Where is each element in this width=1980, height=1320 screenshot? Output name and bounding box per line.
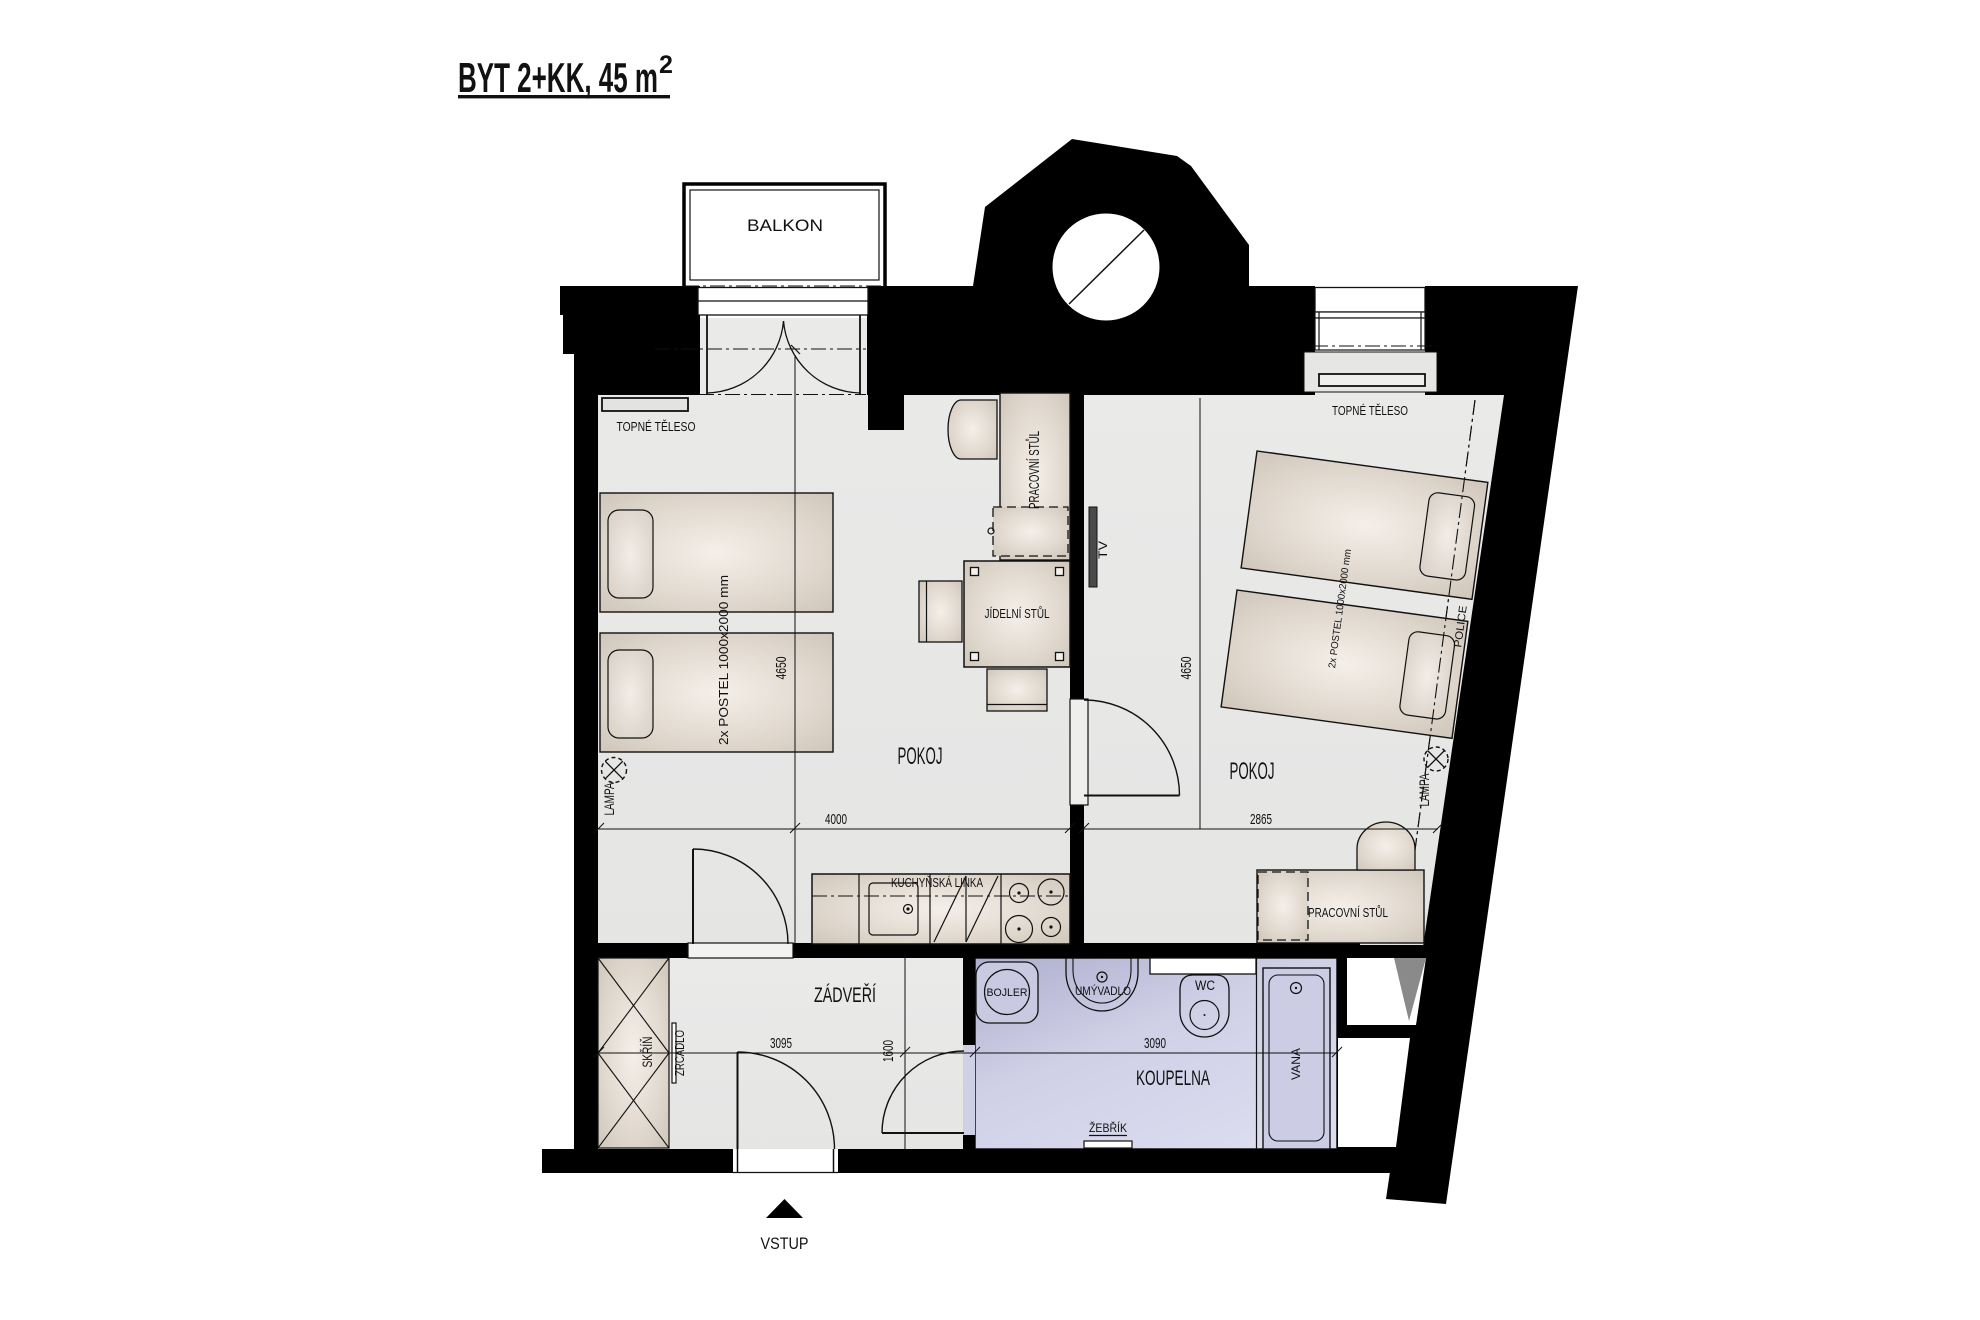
svg-text:1600: 1600 (880, 1040, 897, 1062)
svg-text:2x POSTEL 1000x2000 mm: 2x POSTEL 1000x2000 mm (716, 575, 731, 745)
svg-text:POKOJ: POKOJ (1230, 758, 1275, 785)
svg-text:UMÝVADLO: UMÝVADLO (1075, 983, 1131, 998)
svg-text:KOUPELNA: KOUPELNA (1136, 1067, 1210, 1090)
svg-text:PRACOVNÍ STŮL: PRACOVNÍ STŮL (1025, 431, 1043, 509)
svg-text:WC: WC (1195, 978, 1215, 993)
svg-text:BOJLER: BOJLER (987, 987, 1028, 999)
svg-text:PRACOVNÍ STŮL: PRACOVNÍ STŮL (1308, 905, 1388, 920)
svg-text:ŽEBŘÍK: ŽEBŘÍK (1089, 1120, 1127, 1135)
svg-text:4650: 4650 (1178, 657, 1195, 680)
svg-text:JÍDELNÍ STŮL: JÍDELNÍ STŮL (985, 606, 1050, 621)
svg-text:LAMPA: LAMPA (601, 782, 617, 815)
svg-text:4650: 4650 (773, 657, 790, 680)
svg-text:BYT 2+KK, 45 m: BYT 2+KK, 45 m (458, 54, 658, 101)
svg-text:ZÁDVEŘÍ: ZÁDVEŘÍ (814, 984, 876, 1007)
svg-text:KUCHYŇSKÁ LINKA: KUCHYŇSKÁ LINKA (891, 875, 984, 890)
svg-text:LAMPA: LAMPA (1416, 773, 1432, 806)
svg-text:2: 2 (659, 51, 673, 79)
svg-text:TOPNÉ TĚLESO: TOPNÉ TĚLESO (617, 419, 696, 434)
svg-text:4000: 4000 (825, 811, 847, 828)
svg-text:TOPNÉ TĚLESO: TOPNÉ TĚLESO (1332, 403, 1408, 418)
svg-text:POKOJ: POKOJ (898, 743, 943, 770)
svg-text:SKŘÍŇ: SKŘÍŇ (639, 1037, 655, 1068)
svg-text:3095: 3095 (770, 1035, 792, 1052)
svg-text:3090: 3090 (1144, 1035, 1166, 1052)
svg-text:2865: 2865 (1250, 811, 1272, 828)
svg-text:VSTUP: VSTUP (761, 1234, 809, 1253)
svg-text:BALKON: BALKON (747, 216, 823, 235)
svg-text:TV: TV (1096, 541, 1110, 559)
